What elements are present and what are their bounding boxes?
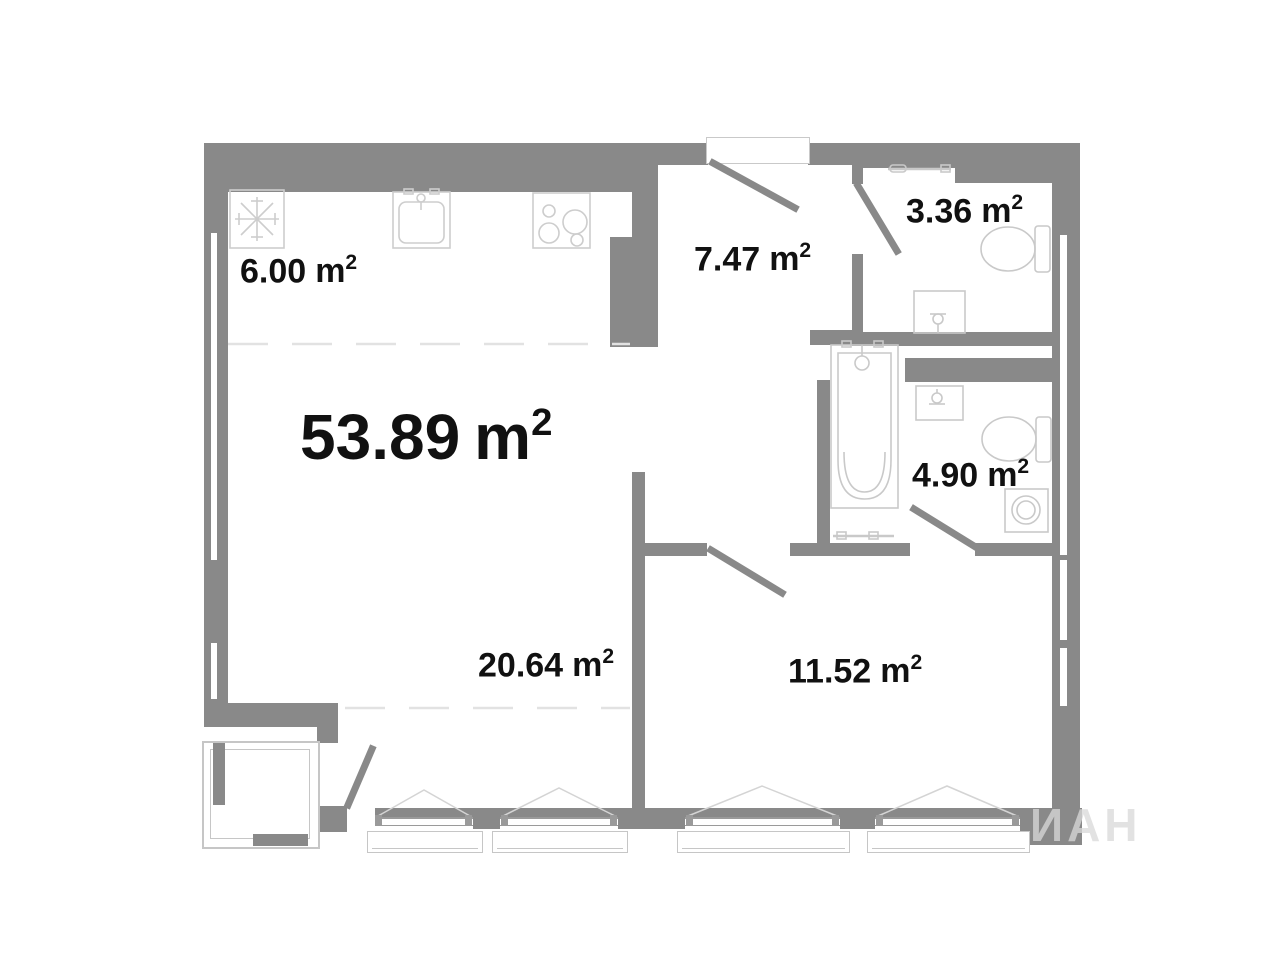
window-hinge: [686, 815, 693, 825]
total-area-label: 53.89m2: [300, 400, 552, 474]
kitchen-area-label: 6.00m2: [240, 252, 357, 291]
towel-rail-icon: [888, 165, 951, 172]
entrance-door-leaf: [713, 163, 795, 208]
kitchen-sink-icon: [393, 189, 450, 248]
living-zone-area-label: 20.64m2: [478, 646, 614, 685]
floor-plan: 6.00m2 7.47m2 3.36m2 4.90m2 20.64m2 11.5…: [0, 0, 1280, 960]
window-hinge: [465, 815, 472, 825]
wc-door-leaf: [858, 186, 897, 251]
bedroom-door-leaf: [711, 550, 782, 593]
toilet-icon: [981, 226, 1050, 272]
window-hinge: [876, 815, 883, 825]
large-bathroom-area-label: 4.90m2: [912, 456, 1029, 495]
window-hinge: [501, 815, 508, 825]
window-casement: [878, 786, 1017, 816]
washbasin-icon: [916, 386, 963, 420]
bedroom-area-label: 11.52m2: [788, 652, 922, 691]
hallway-area-label: 7.47m2: [694, 240, 811, 279]
stove-icon: [533, 193, 590, 248]
window-hinge: [832, 815, 839, 825]
window-hinge: [1012, 815, 1019, 825]
window-casement: [503, 788, 615, 816]
washbasin-icon: [914, 291, 965, 333]
window-hinge: [610, 815, 617, 825]
balcony-door-leaf: [348, 749, 372, 805]
watermark: ИАН: [1030, 798, 1142, 852]
window-hinge: [375, 815, 382, 825]
bathroom-door-leaf: [914, 509, 974, 546]
window-casement: [688, 786, 837, 816]
bathtub-icon: [831, 341, 898, 508]
fridge-icon: [230, 190, 284, 248]
towel-rail-icon: [833, 532, 894, 539]
small-bathroom-area-label: 3.36m2: [906, 192, 1023, 231]
washing-machine-icon: [1005, 489, 1048, 532]
window-casement: [378, 790, 470, 816]
